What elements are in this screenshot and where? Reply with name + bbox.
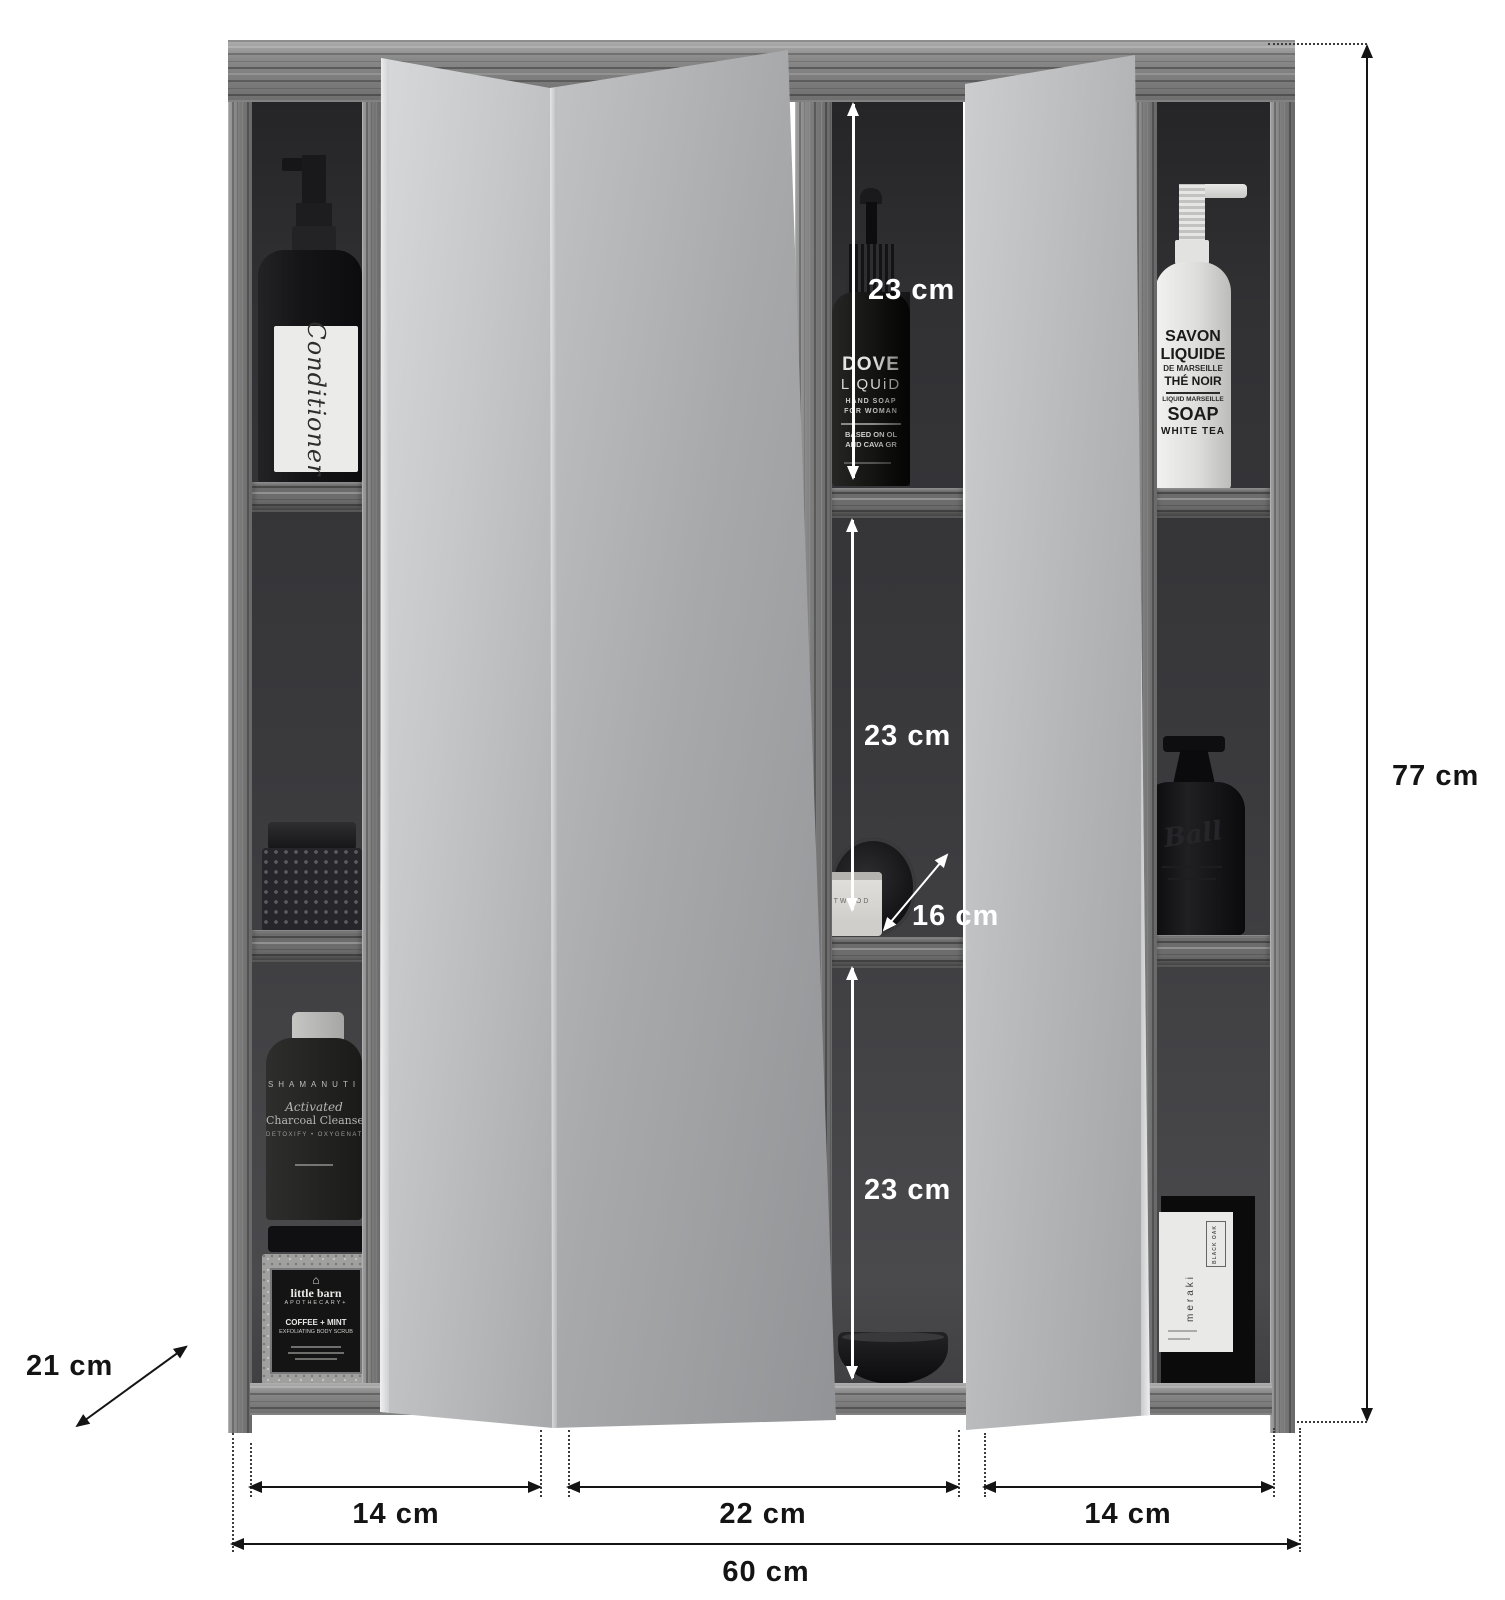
meraki-box: BLACK OAK meraki <box>1161 1196 1255 1385</box>
dim-label-total-width: 60 cm <box>722 1558 809 1587</box>
ornate-jar-lid <box>268 822 356 850</box>
dim-arrow-door-right <box>984 1486 1273 1488</box>
savon-pump-stem <box>1179 184 1205 242</box>
meraki-fineprint-bar-1 <box>1168 1330 1198 1332</box>
mirror-door-center[interactable] <box>548 46 838 1433</box>
dim-label-shelf-depth: 16 cm <box>912 902 999 931</box>
right-shelf-top <box>1155 488 1270 518</box>
meraki-side-box: BLACK OAK <box>1206 1221 1226 1267</box>
little-barn-jar: ⌂ little barn APOTHECARY+ COFFEE + MINT … <box>262 1254 362 1385</box>
conditioner-label-text: Conditioner <box>302 321 330 476</box>
ext-line-height-bottom <box>1297 1421 1367 1423</box>
left-shelf-top <box>252 482 362 512</box>
dim-label-comp-bottom: 23 cm <box>864 1176 951 1205</box>
right-shelf-bottom <box>1155 935 1270 967</box>
little-barn-sub: APOTHECARY+ <box>272 1300 360 1306</box>
dim-label-comp-mid: 23 cm <box>864 722 951 751</box>
savon-line2: LIQUIDE <box>1155 346 1231 364</box>
scrub-jar-lid <box>268 1226 362 1252</box>
dim-arrow-comp-bottom <box>851 968 854 1378</box>
cabinet-side-left <box>228 95 252 1433</box>
conditioner-label: Conditioner <box>274 326 358 472</box>
dim-arrow-comp-mid <box>851 520 854 910</box>
savon-body: SAVON LIQUIDE DE MARSEILLE THÉ NOIR LIQU… <box>1155 262 1231 490</box>
dim-label-comp-top: 23 cm <box>868 276 955 305</box>
ball-embossed-bar-2 <box>1168 878 1216 880</box>
ext-line-left-outer <box>232 1433 234 1552</box>
shamanuti-line2: Activated <box>266 1100 362 1114</box>
ball-bottle-lip <box>1163 736 1225 752</box>
savon-line4: THÉ NOIR <box>1155 374 1231 388</box>
twood-jar-lid <box>830 872 882 880</box>
dim-arrow-door-center <box>568 1486 958 1488</box>
dim-arrow-door-left <box>250 1486 540 1488</box>
ext-line-height-top <box>1268 43 1367 45</box>
conditioner-body: Conditioner <box>258 250 362 484</box>
savon-line3: DE MARSEILLE <box>1155 364 1231 373</box>
ext-line-right-outer <box>1299 1428 1301 1552</box>
dim-label-door-left: 14 cm <box>352 1500 439 1529</box>
dim-label-height: 77 cm <box>1392 762 1479 791</box>
dover-shadow-overlay <box>832 292 910 486</box>
savon-line1: SAVON <box>1155 328 1231 346</box>
dim-label-door-center: 22 cm <box>719 1500 806 1529</box>
savon-line5: LIQUID MARSEILLE <box>1155 396 1231 403</box>
cabinet-side-right <box>1270 95 1295 1433</box>
shamanuti-line4: DETOXIFY • OXYGENATE <box>266 1132 362 1138</box>
meraki-label: BLACK OAK meraki <box>1159 1212 1233 1352</box>
little-barn-line3: COFFEE + MINT <box>272 1318 360 1327</box>
mirror-door-right[interactable] <box>961 51 1152 1433</box>
little-barn-house-icon: ⌂ <box>272 1273 360 1287</box>
ball-embossed-bar-1 <box>1162 866 1222 868</box>
little-barn-fineprint-bar-1 <box>291 1346 340 1348</box>
conditioner-pump-stem <box>302 155 326 205</box>
conditioner-neck <box>296 203 332 228</box>
shamanuti-line3: Charcoal Cleanser <box>266 1114 362 1127</box>
meraki-fineprint-bar-2 <box>1168 1338 1190 1340</box>
ball-bottle-body: Ball <box>1155 782 1245 935</box>
middle-shelf-bottom <box>830 937 963 968</box>
ball-bottle-neck <box>1173 750 1215 784</box>
cabinet-divider-left <box>362 100 382 1385</box>
savon-pump-collar <box>1175 240 1209 264</box>
meraki-brand-text: meraki <box>1185 1274 1196 1322</box>
dim-arrow-total-width <box>232 1543 1299 1545</box>
left-shelf-bottom <box>252 930 362 962</box>
dark-dish-rim <box>842 1332 944 1342</box>
shamanuti-body: SHAMANUTI Activated Charcoal Cleanser DE… <box>266 1038 362 1220</box>
product-dimension-diagram: Conditioner SHAMANUTI Activated Charcoal… <box>0 0 1505 1600</box>
dim-label-depth: 21 cm <box>26 1352 113 1381</box>
dim-arrow-height <box>1366 46 1368 1420</box>
ornate-jar-body <box>262 848 362 932</box>
mirror-door-left[interactable] <box>378 52 554 1433</box>
dover-dropper-stem <box>866 202 877 246</box>
dim-label-door-right: 14 cm <box>1084 1500 1171 1529</box>
shamanuti-brand: SHAMANUTI <box>266 1080 362 1089</box>
middle-shelf-top <box>830 488 963 518</box>
dover-body: DOVE LiQUiD HAND SOAP FOR WOMAN BASED ON… <box>832 292 910 486</box>
little-barn-brand: little barn <box>272 1286 360 1301</box>
little-barn-label: ⌂ little barn APOTHECARY+ COFFEE + MINT … <box>270 1268 362 1374</box>
left-compartment-column: Conditioner SHAMANUTI Activated Charcoal… <box>252 100 362 1385</box>
shamanuti-fineprint-bar <box>295 1164 333 1166</box>
conditioner-collar <box>292 226 336 252</box>
mirror-door-left-edge <box>380 52 389 1433</box>
ball-embossed-text: Ball <box>1155 813 1247 857</box>
savon-divider-bar <box>1166 392 1221 394</box>
meraki-side-text: BLACK OAK <box>1212 1225 1218 1264</box>
little-barn-fineprint-bar-2 <box>288 1352 344 1354</box>
dim-arrow-comp-top <box>852 104 855 478</box>
right-compartment-column: SAVON LIQUIDE DE MARSEILLE THÉ NOIR LIQU… <box>1155 100 1270 1385</box>
savon-line7: WHITE TEA <box>1155 426 1231 437</box>
little-barn-line4: EXFOLIATING BODY SCRUB <box>272 1329 360 1335</box>
savon-line6: SOAP <box>1155 404 1231 425</box>
little-barn-fineprint-bar-3 <box>295 1358 337 1360</box>
